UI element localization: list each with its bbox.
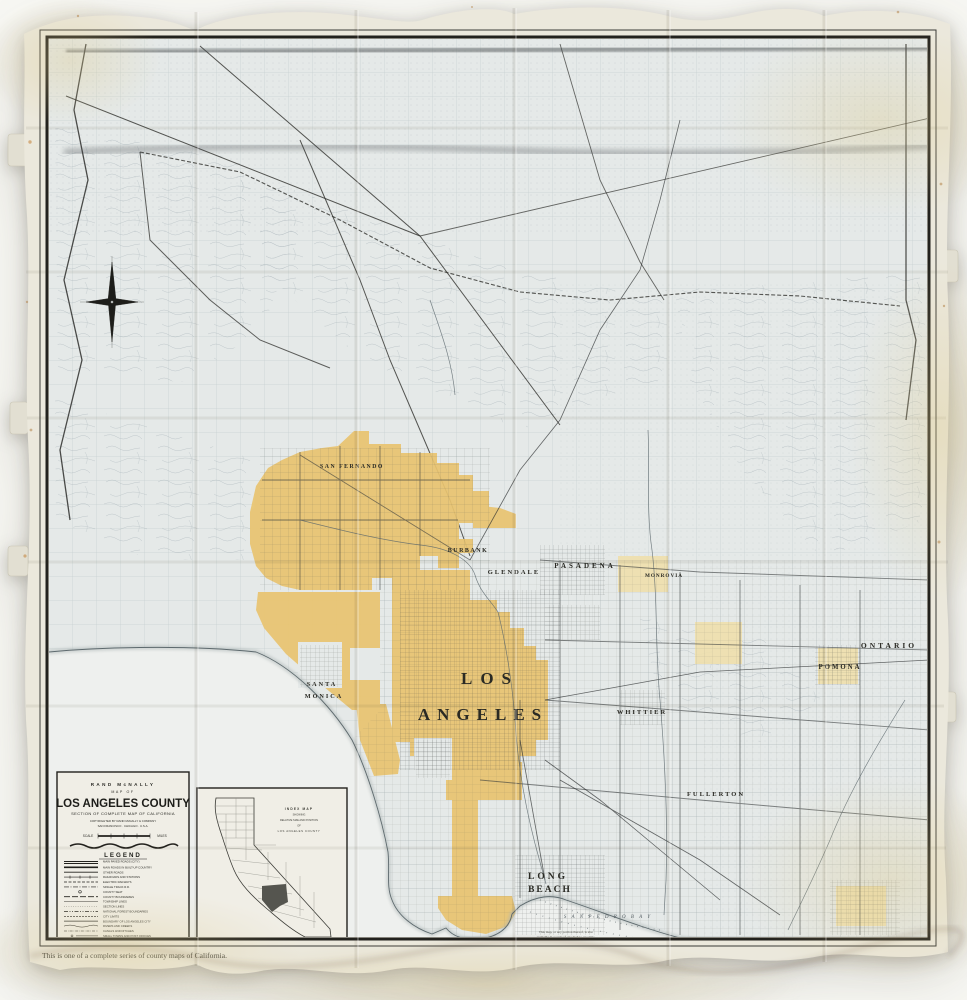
folded-paper-map: LOS ANGELES LONG BEACH PASADENA GLENDALE… <box>0 0 967 1000</box>
label-ontario: ONTARIO <box>861 641 917 650</box>
legend-item: RAILROADS AND STATIONS <box>103 875 140 879</box>
map-subtitle: SECTION OF COMPLETE MAP OF CALIFORNIA <box>71 811 175 816</box>
label-monrovia: MONROVIA <box>645 573 683 579</box>
inset-caption-line: SHOWING <box>293 813 306 817</box>
label-fullerton: FULLERTON <box>687 791 745 798</box>
publisher-name: RAND McNALLY <box>91 782 156 787</box>
legend-item: MAIN PAVED ROADS (CITY) <box>103 860 140 864</box>
inset-caption-line: INDEX MAP <box>285 807 314 811</box>
label-long: LONG <box>528 872 568 882</box>
label-san-fernando: SAN FERNANDO <box>320 464 384 470</box>
copyright-line: COPYRIGHTED BY RAND McNALLY & COMPANY <box>90 819 156 823</box>
legend-heading: LEGEND <box>104 852 142 859</box>
map-of-label: MAP OF <box>111 790 134 794</box>
label-monica: MONICA <box>305 693 343 700</box>
legend-item: SINGLE TRACK R.R. <box>103 885 130 889</box>
label-whittier: WHITTIER <box>617 709 667 716</box>
label-santa: SANTA <box>307 681 338 688</box>
inset-caption-line: LOS ANGELES COUNTY <box>278 829 321 833</box>
label-san-pedro-bay: S A N P E D R O B A Y <box>564 915 652 920</box>
photo-of-folded-map: LOS ANGELES LONG BEACH PASADENA GLENDALE… <box>0 0 967 1000</box>
legend-item: ELECTRIC RAILWAYS <box>103 880 132 884</box>
legend-item: MAIN ROADS IN BUILT-UP COUNTRY <box>103 865 152 869</box>
map-title: LOS ANGELES COUNTY <box>56 798 190 810</box>
miles-label: MILES <box>157 834 167 838</box>
scale-label: SCALE <box>83 834 93 838</box>
label-burbank: BURBANK <box>448 548 489 554</box>
map-photo-svg: LOS ANGELES LONG BEACH PASADENA GLENDALE… <box>0 0 967 1000</box>
label-beach: BEACH <box>528 885 572 895</box>
label-los: LOS <box>461 669 519 688</box>
imprint-line: SAN FRANCISCO · CHICAGO · U.S.A. <box>98 824 149 828</box>
inset-caption-line: OF <box>297 824 301 828</box>
inset-caption-line: RELATIVE SIZE AND POSITION <box>280 818 318 822</box>
label-angeles: ANGELES <box>418 705 548 724</box>
legend-item: OTHER ROADS <box>103 870 124 874</box>
